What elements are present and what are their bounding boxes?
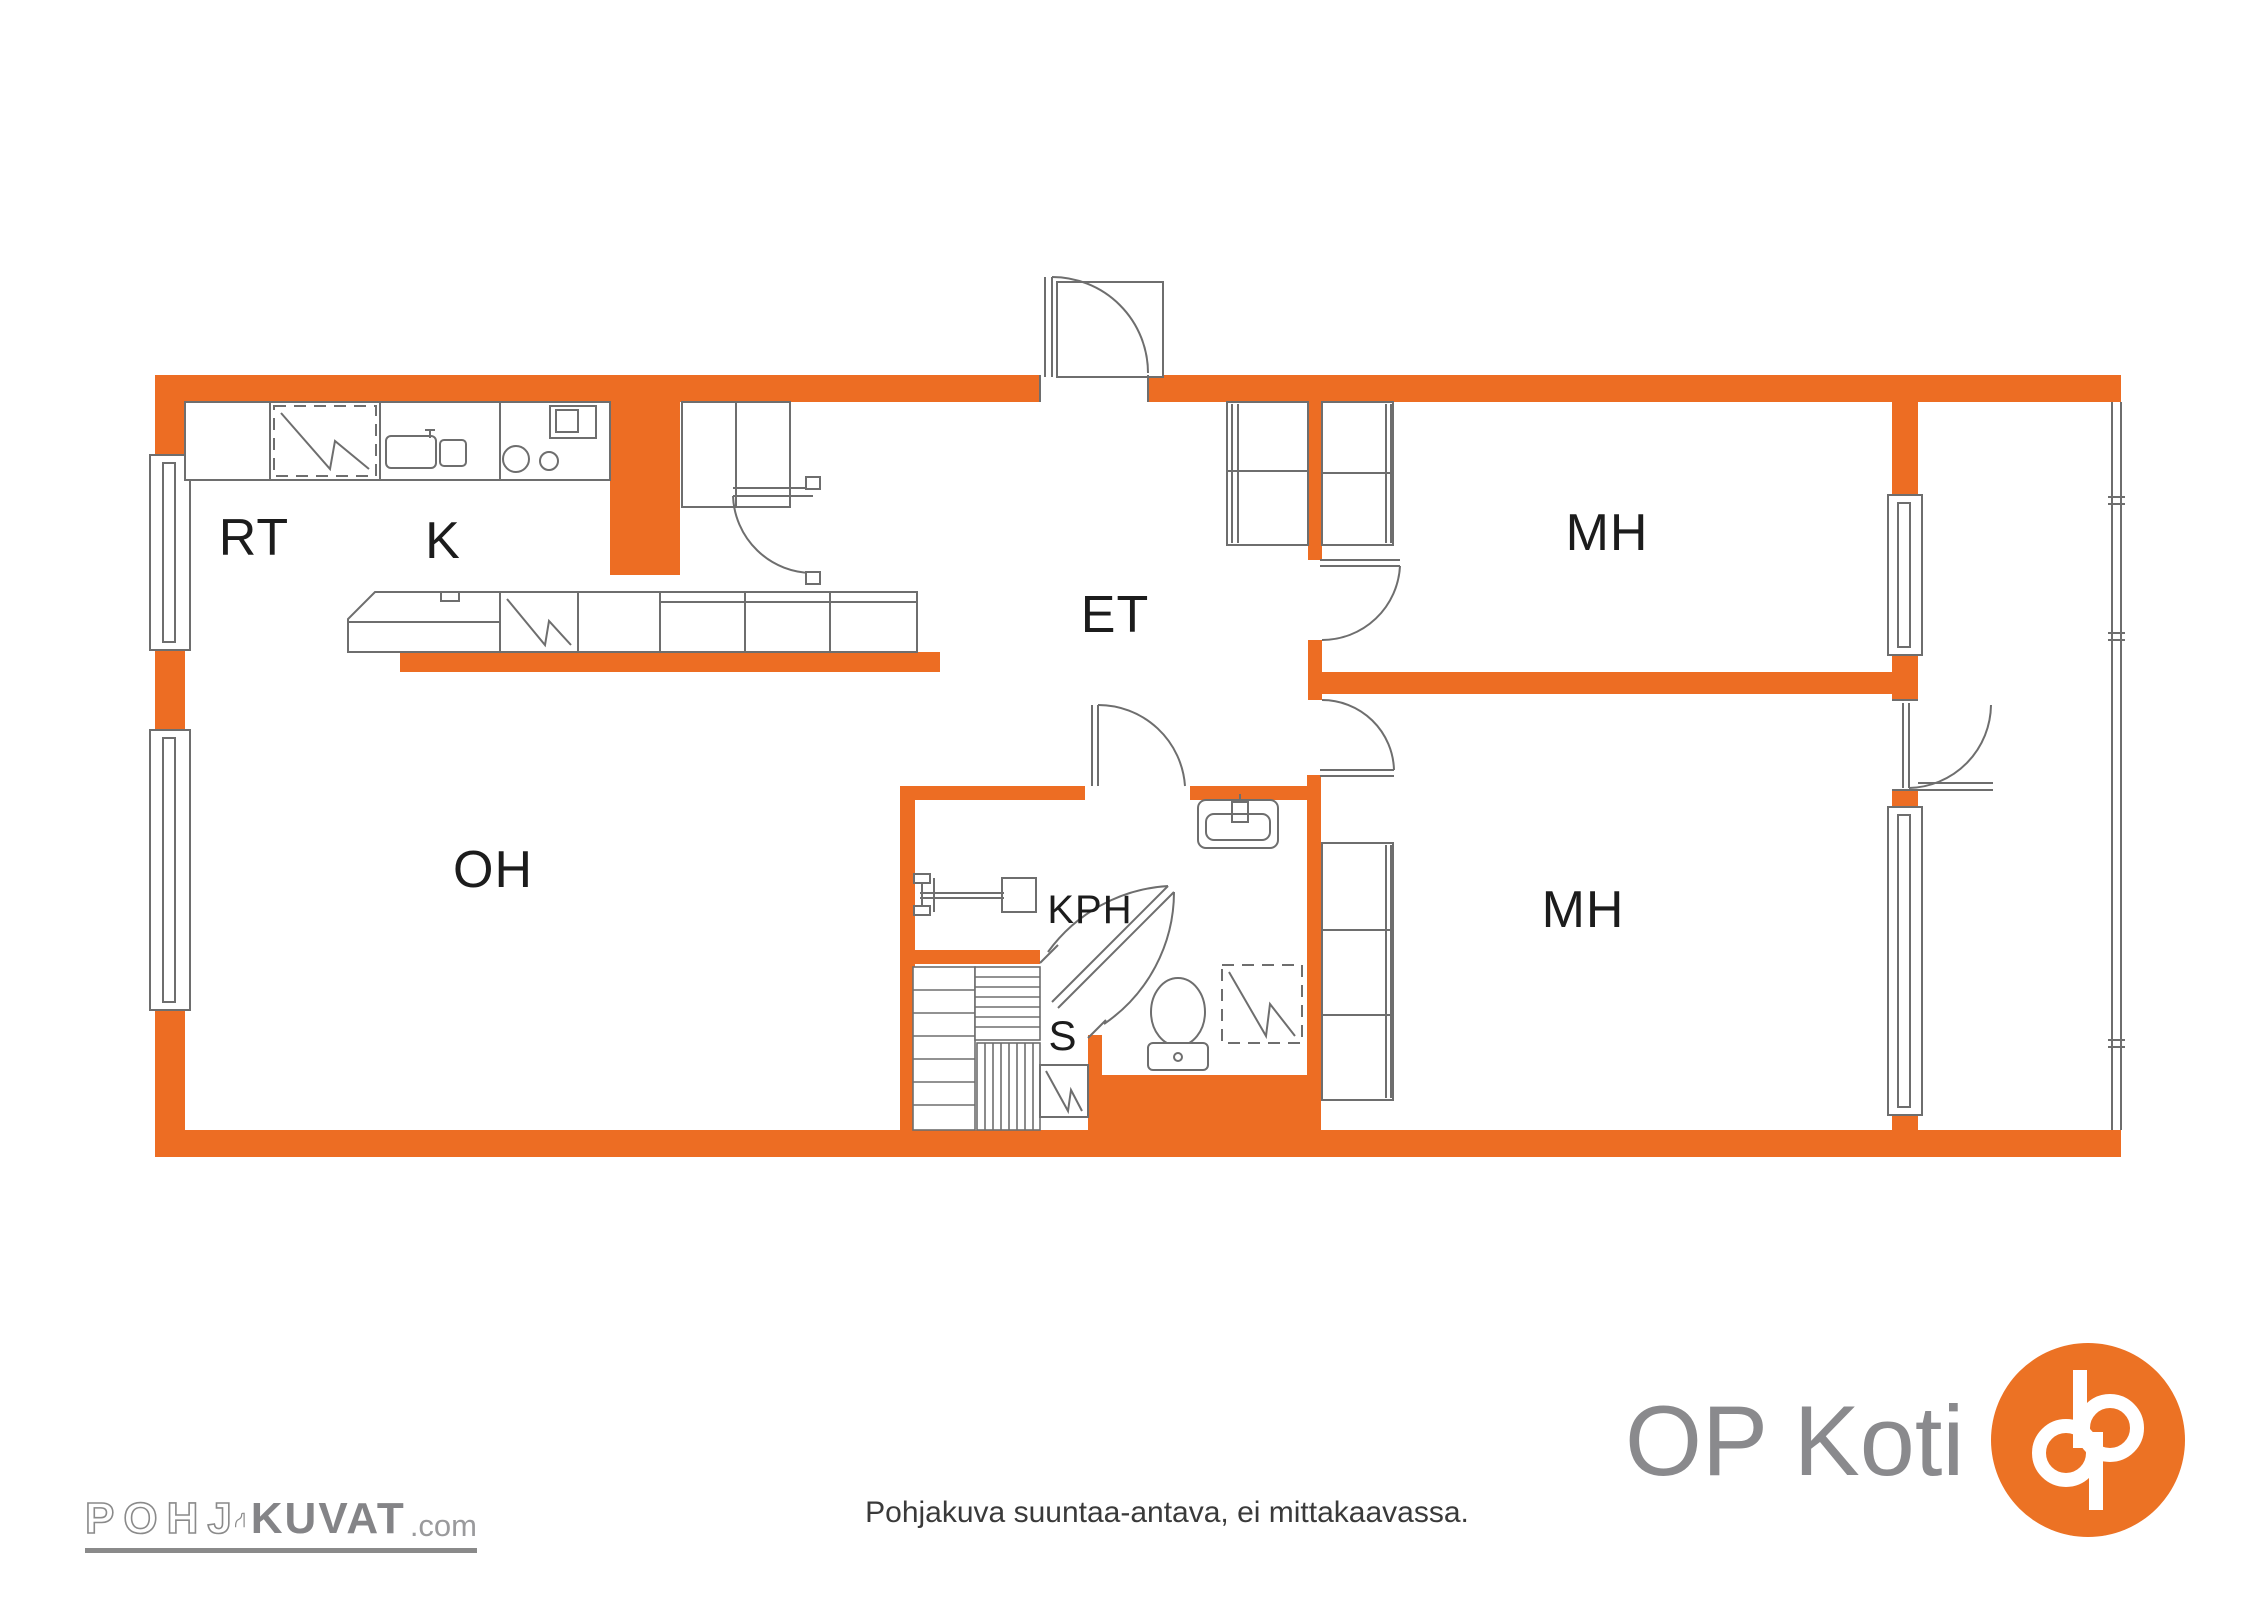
room-label-s: S — [1048, 1012, 1077, 1059]
balcony-railing — [2108, 402, 2125, 1130]
window-mh-bottom — [1888, 807, 1922, 1115]
pohjakuvat-outline-text: POHJ — [85, 1494, 241, 1544]
wall-kitchen-pier — [610, 402, 680, 575]
outer-walls — [155, 375, 2121, 1157]
room-label-rt: RT — [219, 509, 289, 567]
mh-top-door — [1320, 560, 1400, 640]
disclaimer-text: Pohjakuva suuntaa-antava, ei mittakaavas… — [857, 1496, 1477, 1530]
toilet-icon — [1148, 978, 1208, 1070]
op-koti-wordmark: OP Koti — [1625, 1384, 1964, 1498]
mh-bottom-door — [1320, 700, 1394, 776]
wall-top-left — [155, 375, 1040, 402]
wall-et-mh-block — [1308, 640, 1322, 700]
sauna-benches — [913, 967, 1040, 1130]
pohjakuvat-logo: POHJ KUVAT .com — [85, 1494, 477, 1553]
kitchen-counter — [185, 402, 610, 480]
kph-door — [1092, 705, 1185, 786]
room-label-k: K — [425, 512, 461, 570]
wall-mh-divider — [1322, 672, 1892, 694]
pohjakuvat-underline — [85, 1548, 477, 1553]
sauna-stove-icon — [1040, 1065, 1088, 1117]
wall-bottom — [155, 1130, 2121, 1157]
mh-bottom-wardrobes — [1322, 843, 1393, 1100]
wall-sauna-top — [913, 950, 1040, 964]
wall-et-mh-upper — [1308, 402, 1322, 560]
window-mh-top — [1888, 495, 1922, 655]
room-label-mh-bottom: MH — [1542, 881, 1625, 939]
balcony-door — [1892, 700, 1993, 790]
kitchen-tall-cabinet — [682, 402, 790, 507]
room-label-oh: OH — [453, 841, 533, 899]
window-left-1 — [150, 455, 190, 650]
floor-plan: RT K ET MH MH OH KPH S — [0, 0, 2262, 1600]
pohjakuvat-swoosh-icon — [235, 1494, 249, 1546]
wash-basin-icon — [1198, 794, 1278, 848]
room-label-et: ET — [1081, 586, 1149, 644]
pohjakuvat-bold-text: KUVAT — [251, 1494, 406, 1544]
wall-kph-top-right — [1190, 786, 1321, 800]
entrance — [1040, 277, 1163, 402]
washing-machine-icon — [1222, 965, 1302, 1043]
wall-sauna-stub — [1088, 1035, 1102, 1130]
wall-top-right — [1148, 375, 2121, 402]
wall-right-block-mid — [1892, 655, 1918, 700]
op-logo-icon — [1988, 1340, 2188, 1540]
kitchen-island — [348, 592, 917, 652]
mh-top-closet — [1322, 402, 1393, 545]
shower-icon — [914, 874, 1036, 915]
wall-right-pier-top — [1892, 402, 1918, 495]
room-label-kph: KPH — [1047, 888, 1132, 932]
wall-kph-top-left — [900, 786, 1085, 800]
wall-right-pier-door — [1892, 790, 1918, 807]
room-label-mh-top: MH — [1566, 504, 1649, 562]
window-left-2 — [150, 730, 190, 1010]
inner-walls — [400, 402, 1892, 1132]
wall-island-strip — [400, 652, 940, 672]
wall-kph-base — [1102, 1075, 1320, 1132]
et-closet — [1227, 402, 1308, 545]
wall-right-pier-bottom — [1892, 1115, 1918, 1130]
pohjakuvat-com-text: .com — [406, 1508, 477, 1544]
